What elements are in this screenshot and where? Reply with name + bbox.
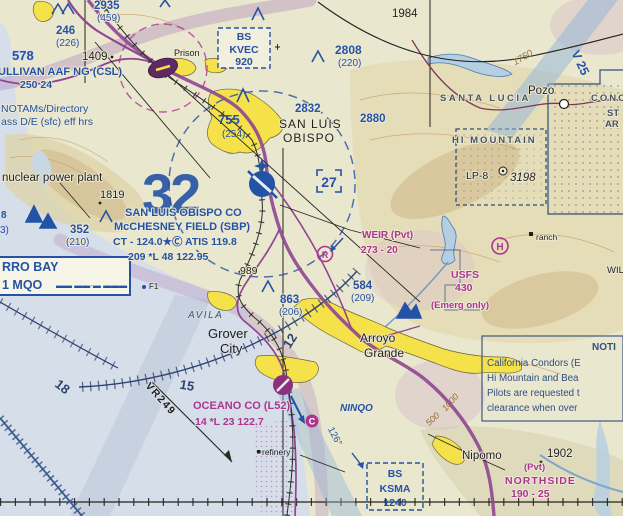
pozo-town-circle [560, 100, 569, 109]
obstr-584-agl: (209) [351, 293, 374, 304]
refinery-building [257, 450, 261, 454]
kvec-line3: 920 [235, 56, 253, 68]
ranch-building [529, 232, 533, 236]
obstr-2808-msl: 2808 [335, 43, 362, 57]
prison-label: Prison [174, 48, 200, 58]
obstr-863-agl: (206) [279, 307, 302, 318]
edge-wil: WIL [607, 265, 623, 276]
obstr-352-agl: (210) [66, 237, 89, 248]
sbp-data: 209 *L 48 122.95 [128, 251, 209, 263]
obstr-755-agl: (254) [222, 129, 245, 140]
elev-989: 989 [240, 265, 258, 277]
peak-3198: 3198 [510, 172, 536, 184]
weir-name: WEIR (Pvt) [362, 230, 413, 241]
notice-line1: California Condors (E [487, 358, 581, 369]
place-arroyo-1: Arroyo [360, 331, 396, 345]
place-refinery: refinery [262, 447, 291, 457]
obstr-2935-msl: 2935 [94, 0, 120, 12]
usfs-elev: 430 [455, 282, 473, 294]
ksma-line2: KSMA [380, 483, 411, 495]
notams-note-1: NOTAMs/Directory [1, 103, 89, 115]
heliport-h: H [496, 242, 503, 253]
kvec-line1: BS [237, 31, 252, 43]
place-slo-1: SAN LUIS [279, 117, 342, 131]
compass-15: 15 [179, 377, 196, 394]
kvec-box: BS KVEC 920 [218, 28, 270, 68]
ctaf-c: C [309, 417, 316, 427]
mqo-line2: 1 MQO [2, 278, 43, 292]
elev-1902: 1902 [547, 448, 573, 460]
elev-2832: 2832 [295, 103, 321, 115]
oceano-name: OCEANO CO (L52) [193, 400, 291, 412]
sbp-name-1: SAN LUIS OBISPO CO [125, 207, 242, 219]
elev-1984: 1984 [392, 8, 418, 20]
notice-line4: clearance when over [487, 403, 578, 414]
mqo-line1: RRO BAY [2, 260, 59, 274]
mef-27: 27 [321, 174, 337, 190]
peak-lp8: LP-8 [466, 170, 488, 182]
edge-partial-8: 8 [1, 210, 7, 221]
northside-pvt: (Pvt) [524, 462, 545, 473]
obstr-755-msl: 755 [218, 112, 240, 127]
place-slo-2: OBISPO [283, 131, 335, 145]
mqo-ndb-box: RRO BAY 1 MQO ▬▬ ▬▬·▬ ▬▬▬ [0, 257, 130, 295]
notice-title: NOTI [592, 342, 616, 353]
obstr-584-msl: 584 [353, 280, 373, 292]
ksma-line1: BS [388, 468, 403, 480]
elev-578: 578 [12, 48, 34, 63]
fix-ninqo: NINQO [340, 403, 373, 414]
obstr-2935-agl: (459) [97, 13, 120, 24]
obstr-352-msl: 352 [70, 224, 89, 236]
usfs-name: USFS [451, 269, 479, 281]
range-hi-mountain: HI MOUNTAIN [452, 135, 537, 146]
csl-airport-data: 250 24 [20, 79, 52, 91]
notice-line2: Hi Mountain and Bea [487, 373, 579, 384]
weir-r-symbol: R [322, 250, 329, 260]
edge-conc: CONC [591, 93, 623, 104]
place-ranch: ranch [536, 232, 558, 242]
obstr-863-msl: 863 [280, 294, 299, 306]
weir-data: 273 - 20 [361, 245, 398, 256]
obstr-246-agl: (226) [56, 38, 79, 49]
kvec-line2: KVEC [229, 44, 259, 56]
edge-partial-3: 3) [0, 225, 9, 236]
mqo-morse-code: ▬▬ ▬▬·▬ ▬▬▬ [56, 281, 127, 290]
oceano-data: 14 *L 23 122.7 [195, 416, 264, 428]
sbp-freqs: CT - 124.0★Ⓒ ATIS 119.8 [113, 235, 237, 248]
elev-1819: 1819 [100, 189, 124, 201]
place-nipomo: Nipomo [462, 450, 502, 462]
place-f1: F1 [149, 282, 159, 291]
northside-name: NORTHSIDE [505, 475, 576, 487]
obstr-2808-agl: (220) [338, 58, 361, 69]
usfs-note: (Emerg only) [431, 300, 489, 311]
nuclear-plant-label: nuclear power plant [2, 172, 103, 184]
notams-note-2: ass D/E (sfc) eff hrs [1, 116, 93, 128]
edge-st: ST [607, 108, 619, 119]
sectional-chart-svg: 27 BS KVEC 920 BS KSMA 1240 RRO BAY 1 MQ… [0, 0, 623, 516]
sbp-name-2: McCHESNEY FIELD (SBP) [114, 221, 250, 233]
place-pozo: Pozo [528, 85, 554, 97]
oceano-ctaf: C [306, 415, 319, 428]
elev-2880: 2880 [360, 113, 386, 125]
place-arroyo-2: Grande [364, 346, 404, 360]
place-grover-2: City [220, 341, 243, 356]
place-grover-1: Grover [208, 326, 248, 341]
notice-line3: Pilots are requested t [487, 388, 580, 399]
northside-data: 190 - 25 [511, 488, 550, 500]
water-avila: AVILA [187, 310, 223, 321]
edge-ar: AR [605, 119, 619, 130]
csl-airport-name: ULLIVAN AAF NG (CSL) [0, 66, 122, 78]
ksma-line3: 1240 [383, 497, 407, 509]
elev-1409: 1409 [82, 51, 108, 63]
sectional-chart-canvas[interactable]: 27 BS KVEC 920 BS KSMA 1240 RRO BAY 1 MQ… [0, 0, 623, 516]
obstr-246-msl: 246 [56, 25, 75, 37]
range-santa-lucia: SANTA LUCIA [440, 93, 531, 104]
